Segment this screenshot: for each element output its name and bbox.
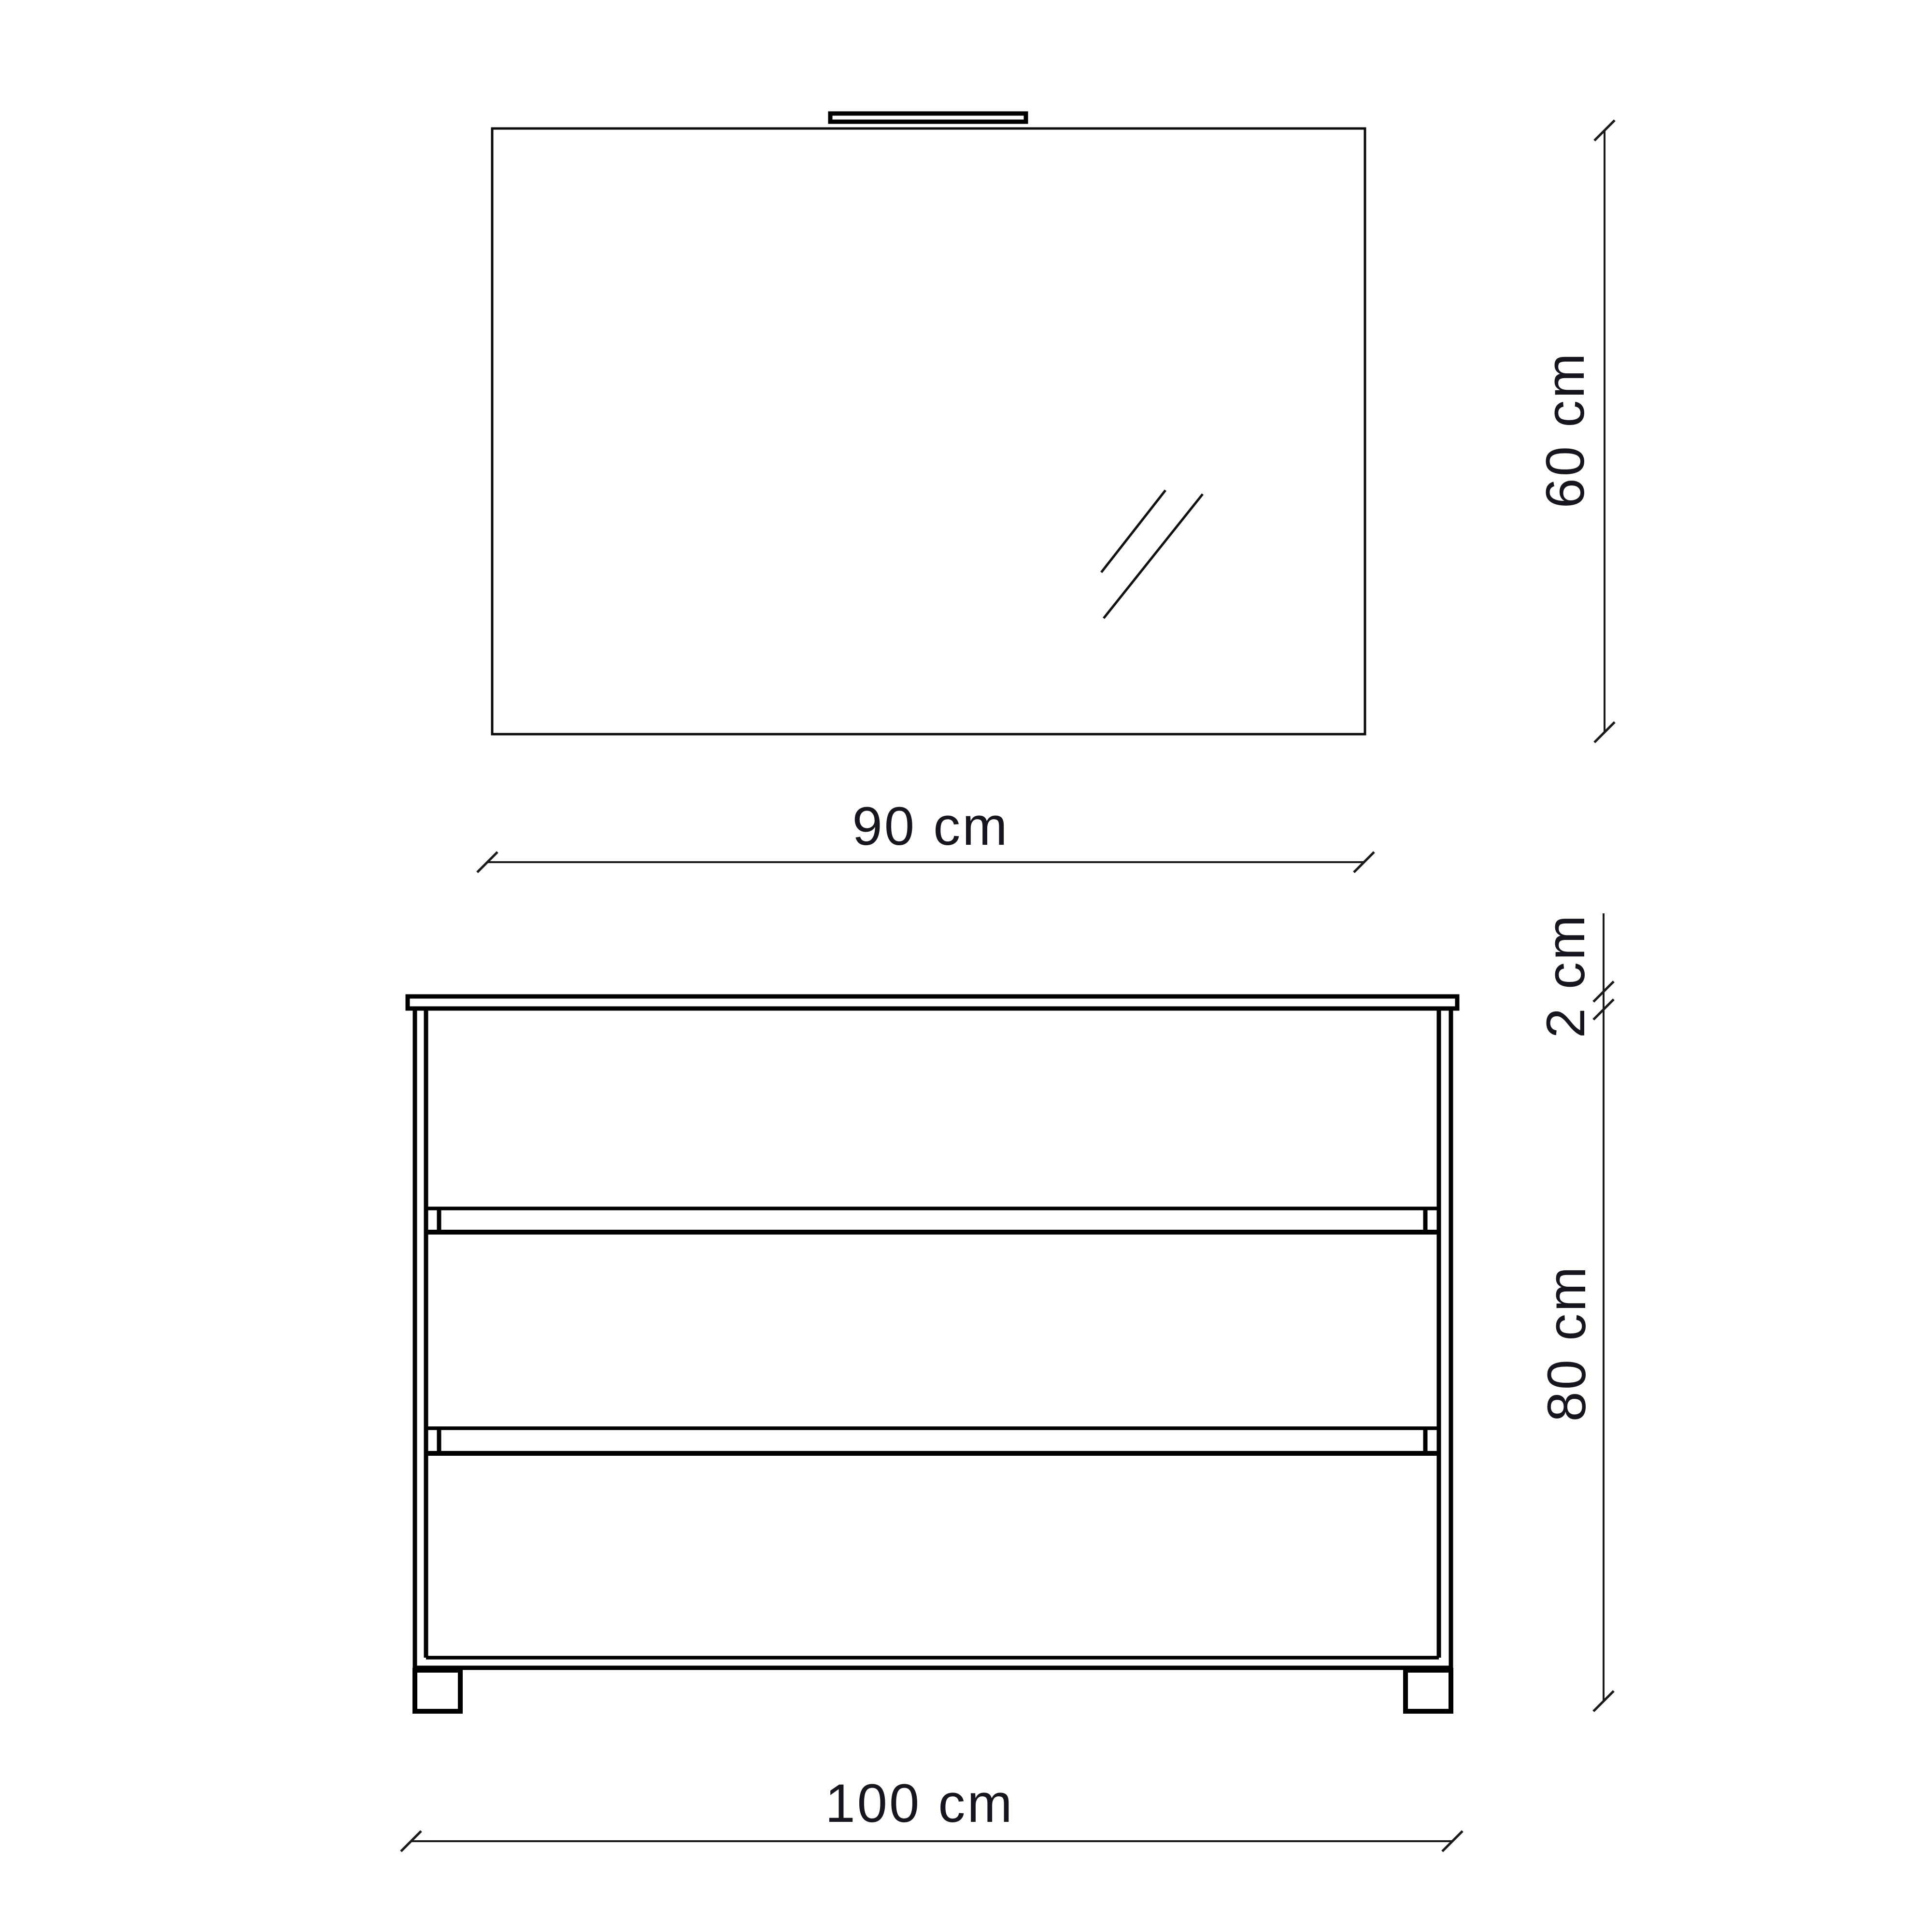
svg-text:2 cm: 2 cm (1535, 913, 1596, 1038)
svg-text:90 cm: 90 cm (852, 796, 1009, 856)
svg-text:100 cm: 100 cm (825, 1773, 1014, 1833)
svg-text:80 cm: 80 cm (1536, 1265, 1597, 1422)
svg-text:60 cm: 60 cm (1535, 352, 1595, 509)
